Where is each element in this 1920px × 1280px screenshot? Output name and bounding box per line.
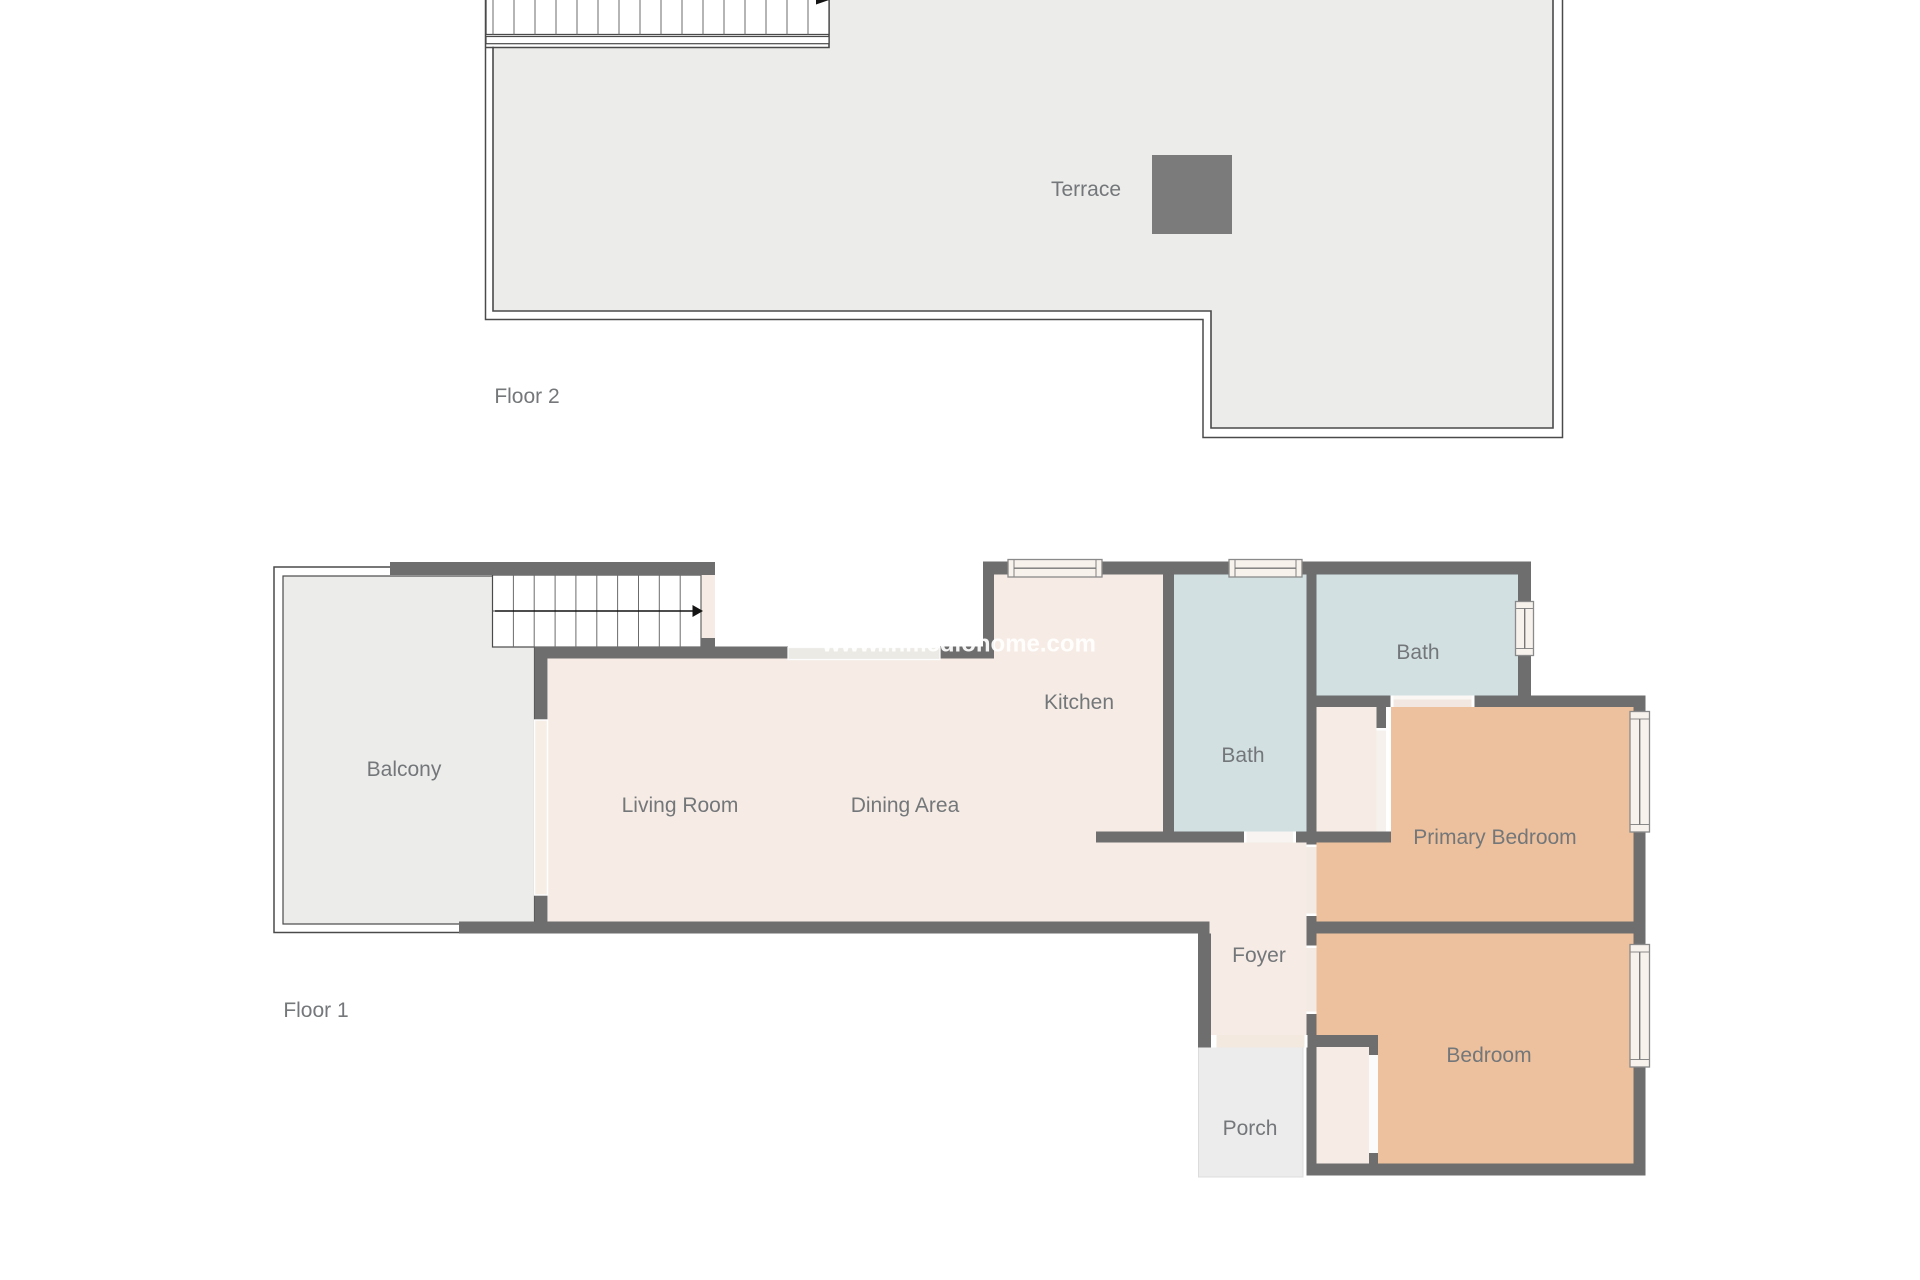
- svg-text:Terrace: Terrace: [1051, 178, 1121, 201]
- svg-text:www.inmediohome.com: www.inmediohome.com: [821, 631, 1096, 658]
- svg-text:Foyer: Foyer: [1232, 944, 1286, 967]
- svg-text:Primary Bedroom: Primary Bedroom: [1413, 826, 1576, 849]
- svg-text:Kitchen: Kitchen: [1044, 691, 1114, 714]
- svg-text:Dining Area: Dining Area: [851, 794, 960, 817]
- svg-text:Balcony: Balcony: [367, 758, 442, 781]
- svg-text:Bath: Bath: [1221, 744, 1264, 767]
- svg-text:Floor 2: Floor 2: [494, 385, 559, 408]
- svg-text:Bedroom: Bedroom: [1446, 1044, 1531, 1067]
- svg-text:Living Room: Living Room: [622, 794, 739, 817]
- svg-text:Bath: Bath: [1396, 641, 1439, 664]
- svg-text:Floor 1: Floor 1: [283, 999, 348, 1022]
- svg-text:Porch: Porch: [1223, 1117, 1278, 1140]
